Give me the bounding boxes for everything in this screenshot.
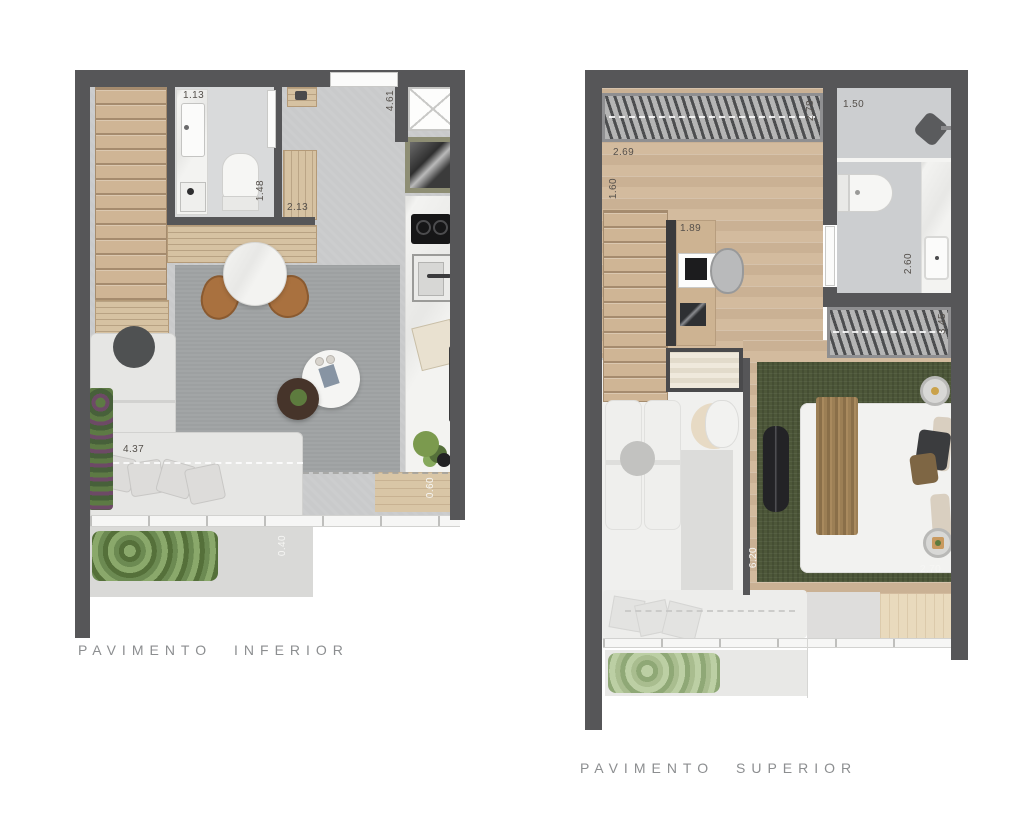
dim-landing: 1.60 bbox=[609, 178, 619, 199]
terrace-table bbox=[620, 441, 655, 476]
upper-staircase bbox=[603, 210, 668, 402]
wall-top bbox=[75, 70, 465, 87]
bathroom-wall-left bbox=[167, 85, 175, 225]
dim-vanity: 1.13 bbox=[183, 91, 204, 101]
burner-right bbox=[433, 220, 448, 235]
entry-door bbox=[330, 72, 398, 87]
desk-chair bbox=[710, 248, 744, 294]
media-console bbox=[763, 426, 789, 512]
sink-basin bbox=[418, 262, 444, 296]
balcony-outside-right bbox=[312, 527, 465, 607]
wall-left bbox=[75, 87, 90, 638]
dim-sofa: 4.37 bbox=[123, 445, 144, 455]
upper-balcony-railing bbox=[603, 638, 951, 648]
upper-step-line bbox=[807, 638, 808, 698]
burner-left bbox=[416, 220, 431, 235]
dim-bath-upper: 2.60 bbox=[904, 253, 914, 274]
mezzanine-projection-line bbox=[303, 472, 458, 474]
balcony-railing bbox=[90, 515, 460, 527]
dining-table bbox=[223, 242, 287, 306]
balcony-planter-leaves bbox=[92, 531, 218, 581]
upper-bathroom-door bbox=[825, 226, 835, 286]
niche-item bbox=[295, 91, 307, 100]
pergola-centerline bbox=[609, 116, 815, 118]
balcony-outside-bottom bbox=[90, 597, 465, 642]
sofa-projection-line bbox=[103, 462, 303, 464]
floorplan-page: { "captions": { "lower": "PAVIMENTO INFE… bbox=[0, 0, 1024, 814]
toilet-button bbox=[855, 190, 860, 195]
dim-bath-depth: 1.48 bbox=[256, 180, 266, 201]
table-plant bbox=[290, 389, 307, 406]
desk-equipment bbox=[680, 303, 706, 326]
bathroom-door bbox=[267, 90, 276, 148]
basin-drain bbox=[935, 256, 939, 260]
kitchen-plant bbox=[413, 431, 439, 457]
dim-shower: 1.50 bbox=[843, 100, 864, 110]
sink-faucet bbox=[427, 274, 451, 278]
upper-toilet-tank bbox=[837, 174, 849, 212]
faucet-dot bbox=[184, 125, 189, 130]
coffee-cup-1 bbox=[315, 357, 324, 366]
void-deck-beige bbox=[880, 594, 951, 638]
sofa-round-cushion bbox=[113, 326, 155, 368]
dim-planter: 0.40 bbox=[278, 535, 288, 556]
deck-strip bbox=[375, 472, 458, 512]
appliance-knob bbox=[187, 188, 194, 195]
staircase bbox=[95, 87, 167, 300]
dim-wardrobe: 2.13 bbox=[287, 203, 308, 213]
dim-pergola-depth: 2.78 bbox=[806, 100, 816, 121]
upper-bath-wall-a bbox=[823, 88, 837, 225]
upper-bath-wall-bottom bbox=[823, 293, 953, 307]
dim-bedroom-length: 6.20 bbox=[749, 547, 759, 568]
dim-louver: 3.45 bbox=[938, 313, 948, 334]
side-planter bbox=[88, 388, 113, 510]
dim-bedroom-width: 2.70 bbox=[920, 565, 941, 575]
dim-pergola-length: 2.69 bbox=[613, 148, 634, 158]
void-projection-line bbox=[625, 610, 795, 612]
closet bbox=[666, 348, 743, 392]
reading-chair bbox=[705, 400, 739, 448]
vanity-appliance bbox=[180, 182, 206, 212]
upper-wall-right bbox=[951, 88, 968, 660]
bathroom-wall-bottom bbox=[167, 217, 315, 225]
floor-plan-lower: 1.13 1.48 2.13 4.61 4.37 0.60 0.40 bbox=[75, 70, 465, 642]
bed-pillow-brown bbox=[909, 452, 939, 485]
upper-wall-top bbox=[585, 70, 968, 88]
black-bowl bbox=[437, 453, 451, 467]
nightstand-plant bbox=[935, 540, 941, 546]
monitor-screen bbox=[685, 258, 707, 280]
terrace-mat bbox=[681, 450, 733, 590]
toilet-bowl bbox=[222, 153, 259, 200]
caption-lower-floor: PAVIMENTO INFERIOR bbox=[78, 642, 349, 658]
toilet-tank bbox=[222, 196, 259, 211]
upper-planter-leaves bbox=[608, 653, 720, 693]
dim-deck: 0.60 bbox=[426, 477, 436, 498]
bed-throw bbox=[816, 397, 858, 535]
caption-upper-floor: PAVIMENTO SUPERIOR bbox=[580, 760, 857, 776]
entry-wall-stub bbox=[395, 87, 408, 142]
void-gray-zone bbox=[807, 592, 880, 638]
dim-desk: 1.89 bbox=[680, 224, 701, 234]
nightstand-top-dish bbox=[931, 387, 939, 395]
floor-plan-upper: 2.69 1.60 2.78 1.50 1.89 2.60 3.45 6.20 … bbox=[585, 70, 968, 732]
louver-centerline bbox=[833, 331, 945, 333]
coffee-cup-2 bbox=[326, 355, 335, 364]
dim-kitchen: 4.61 bbox=[386, 90, 396, 111]
desk-side-panel bbox=[666, 220, 676, 346]
bathroom-sink bbox=[181, 103, 205, 157]
sofa-pillow-4 bbox=[184, 463, 227, 506]
upper-wall-left bbox=[585, 88, 602, 730]
wall-right bbox=[450, 87, 465, 520]
